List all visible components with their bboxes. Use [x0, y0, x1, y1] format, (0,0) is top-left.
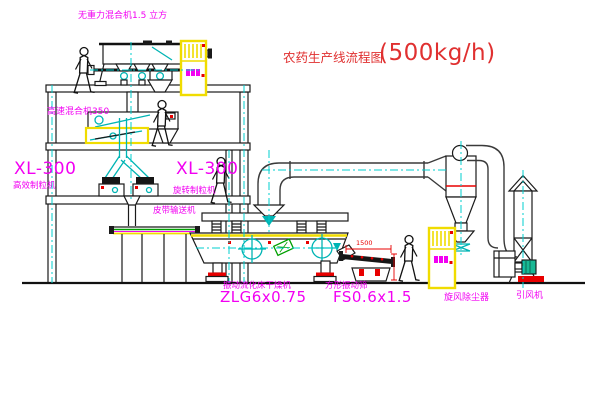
belt-conveyor-label: 皮带输送机 — [153, 207, 196, 216]
granulator-discharge-pipe — [129, 205, 136, 226]
high-speed-mixer-label: 高速混合机350 — [47, 108, 109, 117]
dryer-model-label: ZLG6x0.75 — [220, 290, 307, 305]
zero-gravity-mixer-label: 无重力混合机1.5 立方 — [78, 12, 167, 21]
granulator-right-name-label: 旋转制粒机 — [173, 187, 216, 196]
sieve-model-label: FS0.6x1.5 — [333, 290, 412, 305]
control-cabinet-top — [181, 41, 206, 95]
process-flow-diagram: 农药生产线流程图 (500kg/h) 无重力混合机1.5 立方 高速混合机350… — [0, 0, 600, 403]
fan-label: 引风机 — [516, 292, 543, 301]
floor-slab-3 — [46, 196, 250, 204]
granulator-left-name-label: 高效制粒机 — [13, 182, 56, 191]
person-ground-floor — [399, 236, 419, 282]
sieve-dimension-label: 1500 — [356, 240, 373, 247]
granulator-left-model-label: XL-300 — [14, 161, 76, 178]
granulator-right-model-label: XL-300 — [176, 161, 238, 178]
title-capacity: (500kg/h) — [379, 42, 496, 65]
mixer-feed-pipe — [127, 92, 138, 112]
granulator-right — [133, 177, 158, 196]
title-text: 农药生产线流程图 — [283, 52, 383, 65]
control-cabinet-right — [429, 228, 455, 288]
granulator-left — [99, 177, 124, 196]
belt-conveyor — [109, 226, 200, 282]
fan-motor — [522, 260, 536, 274]
cyclone-label: 旋风除尘器 — [444, 294, 489, 303]
